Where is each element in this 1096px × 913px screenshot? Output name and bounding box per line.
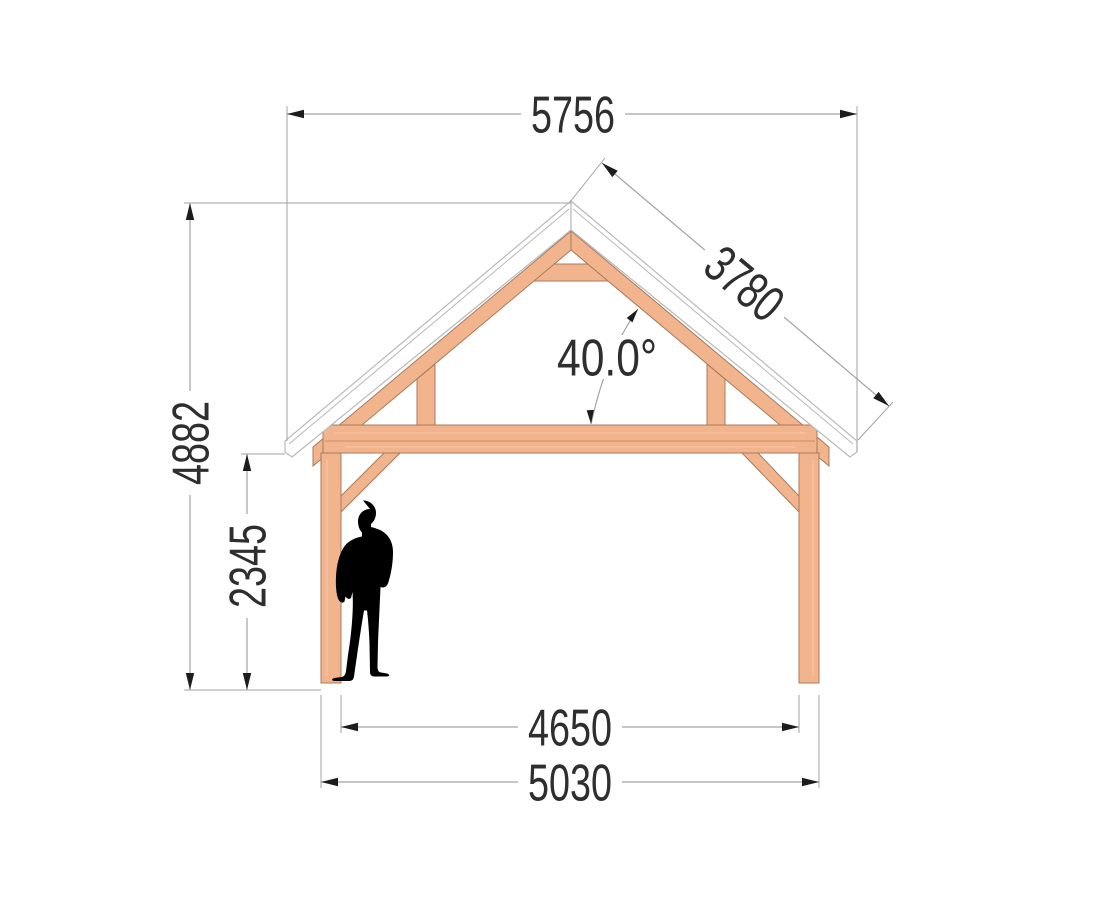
outer-span-label: 5030 xyxy=(528,755,612,813)
arrowhead xyxy=(840,110,857,118)
clearance-height-label: 2345 xyxy=(220,524,278,608)
arrowhead xyxy=(587,410,595,424)
ext-rafter-bottom xyxy=(858,402,893,440)
arrowhead xyxy=(243,454,251,471)
arrowhead xyxy=(782,723,799,731)
ext-rafter-top xyxy=(570,158,605,202)
overall-height-label: 4882 xyxy=(163,401,221,485)
drawing-canvas: 5756 3780 40.0° 4882 2345 4650 5030 xyxy=(0,0,1096,913)
arrowhead xyxy=(243,673,251,690)
arrowhead xyxy=(321,778,338,786)
dim-inner-span: 4650 xyxy=(518,700,622,758)
tie-beam xyxy=(323,425,817,453)
right-post xyxy=(799,453,819,683)
technical-drawing-page: 5756 3780 40.0° 4882 2345 4650 5030 xyxy=(0,0,1096,913)
inner-span-label: 4650 xyxy=(528,700,612,758)
roof-angle-label: 40.0° xyxy=(557,330,657,388)
dim-overall-width: 5756 xyxy=(521,87,625,145)
dim-roof-angle: 40.0° xyxy=(552,330,662,388)
arrowhead xyxy=(802,778,819,786)
dim-overall-height: 4882 xyxy=(163,391,221,495)
dim-clearance-height: 2345 xyxy=(220,514,278,618)
overall-width-label: 5756 xyxy=(531,87,615,145)
right-knee-brace xyxy=(742,453,799,512)
arrowhead xyxy=(186,203,194,220)
arrowhead xyxy=(186,673,194,690)
dim-outer-span: 5030 xyxy=(518,755,622,813)
arrowhead xyxy=(627,307,641,323)
arrowhead xyxy=(341,723,358,731)
arrowhead xyxy=(287,110,304,118)
